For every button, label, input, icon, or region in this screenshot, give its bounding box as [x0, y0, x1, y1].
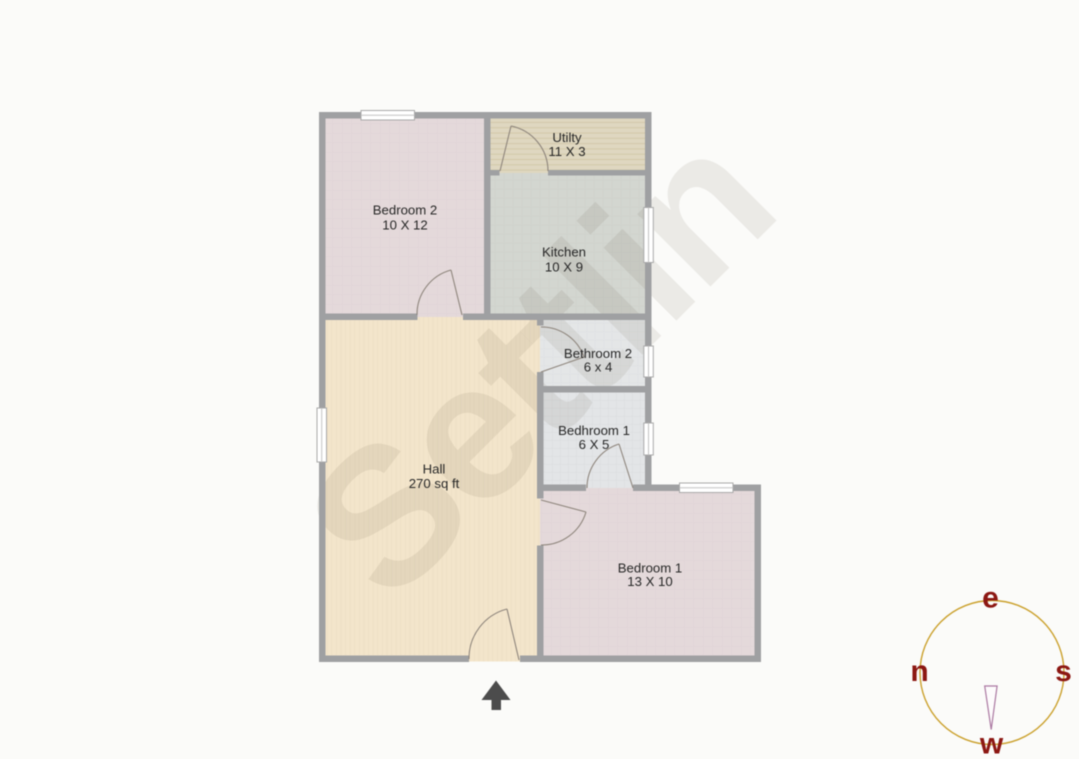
svg-text:Bedroom 2: Bedroom 2 [373, 203, 438, 218]
svg-text:w: w [979, 727, 1004, 759]
svg-text:e: e [982, 581, 999, 614]
svg-text:n: n [910, 655, 928, 688]
svg-text:11 X 3: 11 X 3 [548, 144, 585, 159]
svg-text:13 X 10: 13 X 10 [627, 574, 672, 589]
svg-text:Bedhroom 1: Bedhroom 1 [558, 423, 630, 438]
svg-text:6 x 4: 6 x 4 [584, 360, 613, 375]
svg-text:Utilty: Utilty [552, 130, 582, 145]
svg-text:6 X 5: 6 X 5 [579, 437, 610, 452]
svg-text:Hall: Hall [423, 462, 446, 477]
svg-text:270 sq ft: 270 sq ft [409, 476, 460, 491]
svg-text:10 X 12: 10 X 12 [382, 218, 427, 233]
svg-text:s: s [1055, 655, 1072, 688]
svg-text:Kitchen: Kitchen [542, 245, 586, 260]
svg-text:10 X 9: 10 X 9 [545, 260, 583, 275]
